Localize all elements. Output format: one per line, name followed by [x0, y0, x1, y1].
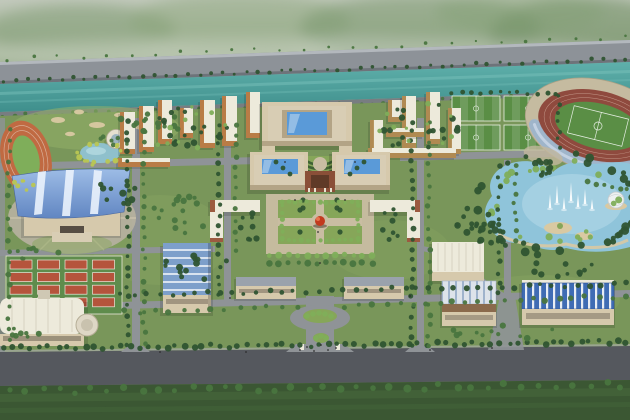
street-tree — [5, 171, 9, 175]
dorm-tree — [391, 125, 396, 130]
gate-column — [308, 188, 310, 192]
lake-tree — [607, 166, 616, 175]
avenue-tree — [7, 387, 12, 392]
avenue-tree — [337, 385, 345, 393]
street-tree — [427, 196, 431, 200]
highway-tree — [230, 48, 233, 51]
stadium-tree — [602, 183, 606, 187]
avenue-tree — [452, 342, 458, 348]
garden-tree — [531, 269, 537, 275]
pitch-stripe — [512, 96, 520, 121]
dorm-tree — [191, 125, 197, 131]
avenue-tree — [155, 386, 162, 393]
highway-tree — [233, 73, 236, 76]
riverbank-tree — [23, 112, 27, 116]
roundabout-tree — [313, 335, 319, 341]
avenue-tree — [586, 339, 591, 344]
lake-tree — [557, 238, 563, 244]
allee-tree — [359, 253, 365, 259]
pedestrian — [409, 295, 411, 297]
street-tree — [450, 285, 456, 291]
avenue-tree — [605, 379, 612, 386]
garden-tree — [238, 225, 244, 231]
street-tree — [427, 173, 431, 177]
lake-tree — [521, 240, 526, 245]
allee-tree — [304, 252, 311, 259]
golf-tree — [134, 120, 140, 126]
highway-tree — [141, 74, 145, 78]
dorm-tree — [184, 142, 191, 149]
street-tree — [295, 305, 300, 310]
highway-tree — [153, 73, 157, 77]
garden-tree — [152, 206, 157, 211]
street-tree — [126, 324, 130, 328]
street-tree — [409, 168, 413, 172]
plaza-tree — [299, 237, 304, 242]
tennis-court — [10, 285, 32, 294]
avenue-tree — [140, 388, 147, 395]
street-tree — [409, 217, 413, 221]
street-tree — [5, 272, 11, 278]
sand-bunker — [89, 122, 105, 128]
street-tree — [497, 163, 503, 169]
dorm-tree — [401, 108, 406, 113]
street-tree — [229, 290, 234, 295]
street-tree — [125, 215, 129, 219]
avenue-tree — [307, 387, 313, 393]
allee-tree — [295, 253, 300, 258]
avenue-tree — [110, 345, 114, 349]
avenue-tree — [515, 341, 520, 346]
avenue-tree — [354, 384, 359, 389]
pitch-stripe — [512, 125, 520, 150]
lake-tree — [595, 171, 602, 178]
street-tree — [497, 250, 501, 254]
highway-tree — [165, 74, 168, 77]
street-tree — [207, 306, 213, 312]
gate-arch — [311, 175, 329, 188]
pitch-tree — [499, 90, 502, 93]
sand-bunker — [51, 117, 65, 123]
street-tree — [218, 290, 224, 296]
roundabout-tree — [316, 310, 322, 316]
lake-tree — [505, 160, 510, 165]
pitch-tree — [469, 90, 474, 95]
street-tree — [7, 227, 12, 232]
street-tree — [125, 303, 129, 307]
street-tree — [496, 239, 501, 244]
dorm-tree — [176, 107, 180, 111]
highway-tree — [117, 75, 120, 78]
golf-tree — [145, 111, 150, 116]
highway-tree — [599, 38, 602, 41]
garden-tree — [119, 190, 126, 197]
street-tree — [428, 270, 433, 275]
street-tree — [216, 192, 222, 198]
garden-tree — [128, 196, 135, 203]
highway-tree — [424, 41, 428, 45]
garden-tree — [391, 207, 395, 211]
lake-wood-tree — [463, 229, 470, 236]
avenue-tree — [57, 345, 63, 351]
pedestrian — [245, 351, 247, 353]
campus-scene-svg — [0, 0, 630, 420]
lake-tree — [518, 235, 523, 240]
street-tree — [217, 123, 221, 127]
plaza-tree — [304, 199, 308, 203]
lake-tree — [474, 187, 482, 195]
pedestrian — [327, 349, 329, 351]
twin-hall-east-facade — [332, 185, 390, 190]
street-tree — [125, 273, 130, 278]
avenue-tree — [289, 343, 294, 348]
avenue-tree — [41, 386, 47, 392]
highway-tree — [335, 68, 339, 72]
garden-tree — [241, 216, 245, 220]
allee-tree — [286, 252, 292, 258]
gate-column — [314, 188, 316, 192]
tennis-court — [10, 260, 32, 269]
avenue-tree — [264, 342, 270, 348]
plaza-tree — [279, 224, 284, 229]
dorm-tree — [209, 110, 214, 115]
avenue-tree — [100, 346, 106, 352]
dorm-tree — [167, 133, 173, 139]
plaza-tree — [356, 203, 361, 208]
dorm-tree — [405, 127, 408, 130]
street-tree — [7, 261, 11, 265]
highway-tree — [359, 66, 363, 70]
sand-bunker — [65, 132, 75, 136]
pool-side-shade — [208, 243, 211, 313]
plaza-tree — [338, 238, 342, 242]
highway-tree — [613, 59, 617, 63]
lake-wood-tree — [543, 159, 549, 165]
garden-tree — [13, 333, 19, 339]
avenue-tree — [279, 341, 285, 347]
dorm-tree — [190, 105, 193, 108]
plaza-tree — [337, 207, 342, 212]
workshop-white — [429, 242, 484, 284]
dorm-tree — [428, 129, 433, 134]
garden-tree — [582, 268, 587, 273]
lake-islet — [557, 223, 563, 229]
street-tree — [233, 165, 238, 170]
street-tree — [369, 301, 375, 307]
street-tree — [497, 195, 501, 199]
lake-tree — [556, 246, 565, 255]
street-tree — [234, 186, 238, 190]
street-tree — [428, 185, 432, 189]
dorm-tree — [169, 110, 174, 115]
avenue-tree — [554, 385, 559, 390]
avenue-tree — [403, 385, 411, 393]
garden-tree — [253, 235, 259, 241]
garden-tree — [396, 234, 400, 238]
pedestrian — [320, 344, 322, 346]
natatorium-tower — [38, 290, 50, 299]
street-tree — [124, 130, 129, 135]
allee-tree — [297, 261, 301, 265]
dormitory-facade — [426, 92, 430, 144]
dorm-tree — [217, 134, 223, 140]
avenue-tree — [73, 346, 78, 351]
lake-tree — [503, 178, 509, 184]
fountain-splash — [582, 204, 588, 206]
allee-tree — [322, 252, 329, 259]
street-tree — [5, 238, 11, 244]
street-tree — [234, 219, 238, 223]
lake-tree — [524, 154, 529, 159]
tennis-court — [10, 273, 32, 282]
pond-tree — [87, 142, 92, 147]
dorm-tree — [162, 121, 166, 125]
pond-tree — [119, 149, 123, 153]
garden-tree — [20, 256, 24, 260]
street-tree — [141, 172, 145, 176]
highway-tree — [601, 57, 605, 61]
street-tree — [216, 233, 220, 237]
golf-tree — [101, 134, 106, 139]
highway-tree — [186, 72, 190, 76]
golf-tree — [140, 128, 146, 134]
street-tree — [125, 225, 129, 229]
street-tree — [623, 280, 629, 286]
lake-tree — [578, 242, 585, 249]
avenue-tree — [335, 342, 339, 346]
avenue-tree — [551, 339, 556, 344]
street-tree — [496, 175, 500, 179]
street-tree — [8, 150, 12, 154]
street-tree — [428, 322, 433, 327]
street-tree — [563, 285, 567, 289]
street-tree — [182, 292, 186, 296]
garden-tree — [454, 332, 460, 338]
highway-tree — [326, 68, 329, 71]
plaza-tree — [337, 200, 341, 204]
garden-tree — [194, 200, 200, 206]
pond-tree — [95, 142, 100, 147]
highway-tree — [280, 69, 283, 72]
plaza-tree — [356, 236, 361, 241]
highway-tree — [545, 60, 549, 64]
pond-tree — [25, 188, 29, 192]
street-tree — [182, 308, 186, 312]
garden-tree — [163, 259, 169, 265]
avenue-tree — [380, 341, 387, 348]
plaza-tree — [331, 238, 335, 242]
street-tree — [410, 128, 414, 132]
allee-tree — [352, 253, 356, 257]
highway-tree — [371, 65, 375, 69]
street-tree — [410, 186, 415, 191]
pitch-stripe — [492, 96, 500, 121]
lake-tree — [572, 158, 578, 164]
garden-tree — [163, 264, 167, 268]
street-tree — [218, 214, 223, 219]
highway-tree — [48, 77, 52, 81]
street-tree — [464, 285, 470, 291]
street-tree — [497, 229, 502, 234]
garden-tree — [590, 263, 594, 267]
pitch-stripe — [460, 96, 468, 121]
street-tree — [6, 217, 10, 221]
garden-tree — [18, 330, 24, 336]
highway-tree — [429, 64, 432, 67]
garden-tree — [563, 261, 569, 267]
street-tree — [234, 123, 239, 128]
highway-tree — [405, 65, 409, 69]
street-tree — [498, 184, 503, 189]
fountain-splash — [575, 207, 581, 209]
street-tree — [427, 344, 431, 348]
garden-tree — [391, 230, 396, 235]
street-tree — [268, 288, 274, 294]
pitch-tree — [515, 90, 519, 94]
avenue-tree — [192, 344, 198, 350]
brick-accent — [210, 238, 223, 242]
avenue-tree — [362, 344, 367, 349]
avenue-tree — [309, 345, 313, 349]
highway-tree — [575, 37, 578, 40]
street-tree — [557, 296, 563, 302]
campus-aerial-rendering — [0, 0, 630, 420]
street-tree — [408, 158, 413, 163]
avenue-tree — [165, 345, 172, 352]
garden-tree — [16, 249, 20, 253]
street-tree — [127, 207, 132, 212]
street-tree — [340, 287, 346, 293]
avenue-tree — [508, 342, 512, 346]
allee-tree — [304, 260, 311, 267]
street-tree — [153, 308, 158, 313]
avenue-tree — [518, 384, 525, 391]
pitch-tree — [508, 91, 511, 94]
street-tree — [409, 334, 415, 340]
highway-tree — [278, 49, 280, 51]
pond-tree — [105, 159, 110, 164]
highway-tree — [375, 46, 378, 49]
street-tree — [329, 287, 335, 293]
avenue-tree — [373, 340, 379, 346]
highway-tree — [61, 78, 64, 81]
street-tree — [518, 298, 523, 303]
highway-tree — [2, 80, 5, 83]
street-tree — [496, 272, 500, 276]
highway-tree — [131, 54, 134, 57]
garden-tree — [55, 250, 61, 256]
avenue-tree — [155, 345, 161, 351]
street-tree — [127, 189, 131, 193]
garden-tree — [183, 221, 187, 225]
allee-tree — [332, 260, 337, 265]
street-tree — [143, 341, 148, 346]
lake-tree — [621, 222, 630, 231]
allee-tree — [315, 262, 320, 267]
street-tree — [409, 247, 414, 252]
highway-tree — [105, 54, 108, 57]
garden-tree — [109, 187, 114, 192]
lake-wood-tree — [546, 169, 552, 175]
pedestrian — [159, 351, 161, 353]
street-tree — [126, 293, 132, 299]
dorm-tree — [395, 108, 399, 112]
garden-tree — [176, 194, 181, 199]
street-tree — [426, 285, 432, 291]
plaza-tree — [312, 201, 315, 204]
street-tree — [5, 193, 11, 199]
allee-tree — [359, 259, 365, 265]
avenue-tree — [479, 342, 484, 347]
avenue-tree — [235, 384, 243, 392]
pool-roof-rib — [163, 289, 211, 291]
highway-tree — [589, 57, 593, 61]
garden-tree — [179, 274, 184, 279]
pedestrian — [229, 297, 231, 299]
golf-tree — [125, 142, 129, 146]
plaza-tree — [350, 200, 355, 205]
avenue-tree — [64, 344, 69, 349]
allee-tree — [286, 260, 291, 265]
street-tree — [215, 160, 221, 166]
pitch-tree — [460, 90, 465, 95]
dorm-tree — [183, 118, 188, 123]
plaza-tree — [279, 236, 284, 241]
street-tree — [542, 298, 548, 304]
street-tree — [165, 309, 171, 315]
dorm-tree — [195, 112, 199, 116]
garden-tree — [383, 211, 387, 215]
plaza-tree — [349, 238, 353, 242]
allee-tree — [369, 252, 376, 259]
pitch-tree — [557, 94, 560, 97]
allee-tree — [340, 259, 347, 266]
garden-tree — [157, 216, 161, 220]
gate-column — [330, 188, 332, 192]
street-tree — [317, 289, 322, 294]
plaza-tree — [355, 217, 359, 221]
lake-wood-tree — [474, 224, 478, 228]
avenue-tree — [104, 389, 109, 394]
lake-wood-tree — [490, 224, 495, 229]
allee-tree — [323, 259, 329, 265]
street-tree — [549, 284, 554, 289]
plaza-tree — [325, 238, 329, 242]
street-tree — [538, 282, 542, 286]
lake-wood-tree — [465, 206, 471, 212]
avenue-tree — [434, 339, 441, 346]
roundabout-tree — [323, 335, 329, 341]
street-tree — [568, 295, 574, 301]
lake-tree — [573, 150, 579, 156]
street-tree — [511, 201, 515, 205]
golf-tree — [143, 117, 148, 122]
street-tree — [171, 293, 175, 297]
plaza-tree — [297, 207, 302, 212]
street-tree — [354, 287, 360, 293]
garden-tree — [172, 202, 177, 207]
garden-tree — [550, 328, 554, 332]
street-tree — [399, 301, 403, 305]
garden-tree — [192, 256, 198, 262]
factory-windows — [526, 313, 610, 319]
dorm-tree — [449, 134, 454, 139]
fountain-splash — [554, 203, 560, 205]
garden-tree — [533, 260, 539, 266]
street-tree — [463, 300, 467, 304]
gym-steps — [52, 232, 92, 242]
brick-accent — [415, 200, 420, 212]
